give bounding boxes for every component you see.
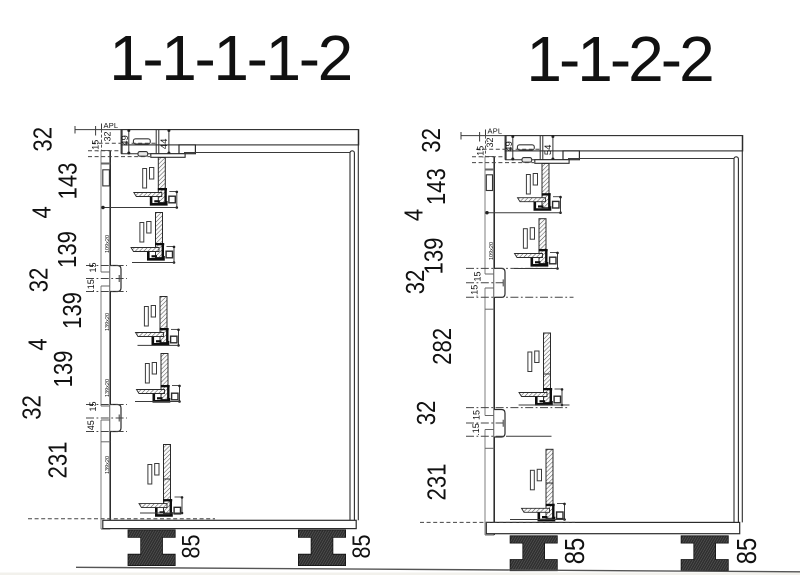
svg-text:15: 15 xyxy=(473,271,483,281)
svg-text:4: 4 xyxy=(398,209,428,221)
svg-text:85: 85 xyxy=(178,535,206,559)
svg-text:85: 85 xyxy=(348,535,376,559)
svg-text:44: 44 xyxy=(159,139,170,150)
svg-text:85: 85 xyxy=(559,538,590,565)
svg-text:143: 143 xyxy=(53,163,83,200)
svg-text:139: 139 xyxy=(48,351,78,388)
svg-text:109x20: 109x20 xyxy=(105,235,111,253)
svg-text:139x20: 139x20 xyxy=(105,456,111,474)
svg-text:32: 32 xyxy=(24,268,54,293)
svg-text:.45: .45 xyxy=(86,420,96,433)
svg-text:32: 32 xyxy=(16,395,46,420)
svg-text:APL: APL xyxy=(104,121,119,130)
svg-text:139: 139 xyxy=(57,292,87,329)
svg-text:APL: APL xyxy=(488,127,503,136)
svg-text:4: 4 xyxy=(23,338,53,350)
svg-text:15: 15 xyxy=(88,262,98,272)
svg-text:139: 139 xyxy=(52,231,82,268)
svg-text:109x20: 109x20 xyxy=(489,242,495,260)
svg-text:231: 231 xyxy=(43,442,73,479)
svg-text:282: 282 xyxy=(427,328,457,365)
svg-text:.15: .15 xyxy=(86,279,96,292)
svg-text:231: 231 xyxy=(421,464,451,501)
svg-text:143: 143 xyxy=(421,168,451,205)
svg-text:85: 85 xyxy=(731,538,762,565)
svg-text:139x20: 139x20 xyxy=(105,313,111,331)
svg-text:32: 32 xyxy=(103,131,113,141)
svg-text:1-1-1-1-2: 1-1-1-1-2 xyxy=(109,22,351,94)
svg-text:32: 32 xyxy=(411,401,441,426)
svg-text:54: 54 xyxy=(543,145,554,156)
svg-text:32: 32 xyxy=(416,128,446,153)
svg-text:139: 139 xyxy=(419,238,449,275)
svg-text:4: 4 xyxy=(27,206,57,218)
svg-text:49: 49 xyxy=(504,141,515,152)
svg-text:1-1-2-2: 1-1-2-2 xyxy=(526,23,712,95)
svg-text:32: 32 xyxy=(27,127,57,152)
svg-text:15: 15 xyxy=(88,401,98,411)
svg-text:.15: .15 xyxy=(471,423,481,436)
svg-text:.15: .15 xyxy=(470,285,480,298)
svg-text:49: 49 xyxy=(120,135,131,146)
svg-text:139x20: 139x20 xyxy=(105,379,111,397)
svg-text:32: 32 xyxy=(485,137,495,147)
svg-text:32: 32 xyxy=(400,270,430,295)
svg-text:15: 15 xyxy=(471,410,481,420)
